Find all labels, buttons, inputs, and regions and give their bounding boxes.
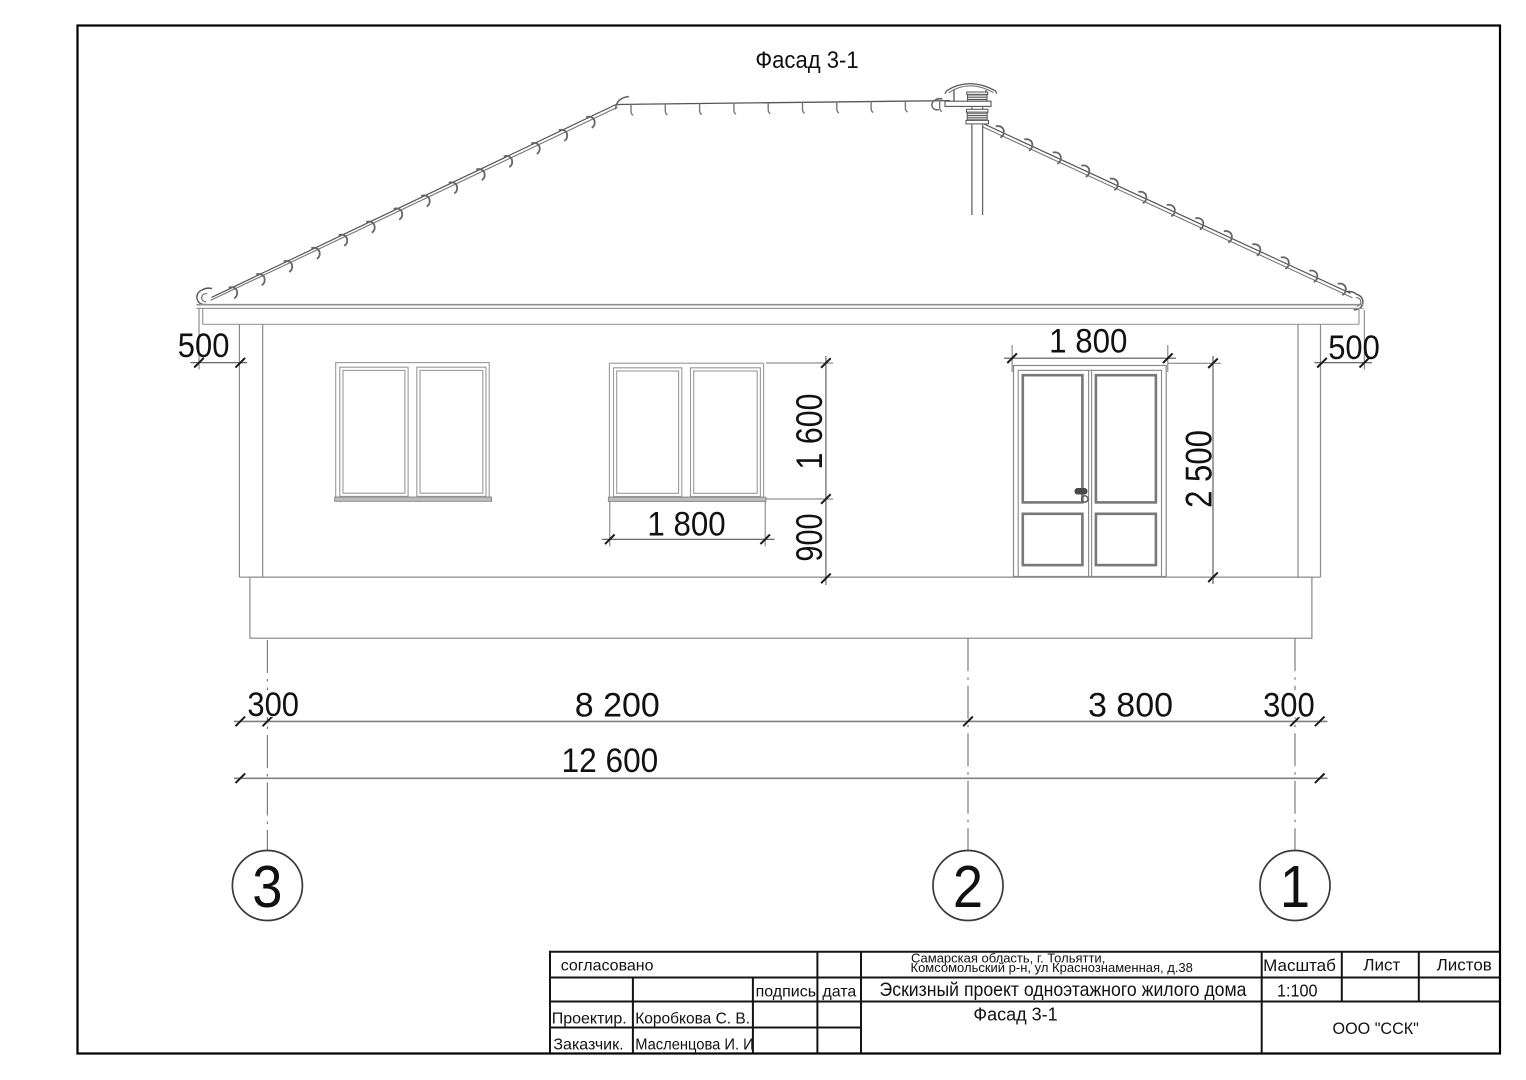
svg-text:3 800: 3 800 xyxy=(1088,687,1173,725)
svg-text:3: 3 xyxy=(252,855,282,921)
svg-text:ООО "ССК": ООО "ССК" xyxy=(1333,1019,1419,1038)
svg-text:2 500: 2 500 xyxy=(1179,430,1220,508)
svg-text:1:100: 1:100 xyxy=(1277,981,1318,1001)
svg-text:Проектир.: Проектир. xyxy=(552,1011,627,1028)
svg-text:500: 500 xyxy=(178,327,230,365)
svg-text:Листов: Листов xyxy=(1437,955,1492,974)
svg-text:Масштаб: Масштаб xyxy=(1263,956,1336,975)
svg-text:8 200: 8 200 xyxy=(575,687,660,725)
svg-text:Заказчик.: Заказчик. xyxy=(553,1037,623,1054)
svg-text:Фасад 3-1: Фасад 3-1 xyxy=(755,46,858,73)
svg-text:подпись: подпись xyxy=(756,984,816,1001)
svg-text:Фасад 3-1: Фасад 3-1 xyxy=(973,1005,1057,1025)
svg-text:500: 500 xyxy=(1328,329,1380,367)
svg-text:12 600: 12 600 xyxy=(562,741,659,779)
svg-text:Комсомольский р-н, ул Краснозн: Комсомольский р-н, ул Краснознаменная, д… xyxy=(911,960,1193,975)
svg-text:1 800: 1 800 xyxy=(647,504,725,543)
svg-text:2: 2 xyxy=(953,855,983,921)
svg-text:Лист: Лист xyxy=(1363,955,1400,974)
svg-text:300: 300 xyxy=(247,686,299,724)
svg-text:1: 1 xyxy=(1280,855,1310,921)
svg-text:Эскизный проект одноэтажного ж: Эскизный проект одноэтажного жилого дома xyxy=(880,978,1248,1000)
svg-text:Коробкова С. В.: Коробкова С. В. xyxy=(635,1010,750,1027)
svg-text:1 600: 1 600 xyxy=(789,394,831,470)
svg-text:300: 300 xyxy=(1263,686,1315,724)
svg-text:1 800: 1 800 xyxy=(1049,321,1127,360)
svg-text:дата: дата xyxy=(822,984,856,1001)
svg-text:900: 900 xyxy=(789,513,830,561)
svg-text:Масленцова И. И: Масленцова И. И xyxy=(635,1036,754,1054)
svg-text:согласовано: согласовано xyxy=(561,957,654,974)
